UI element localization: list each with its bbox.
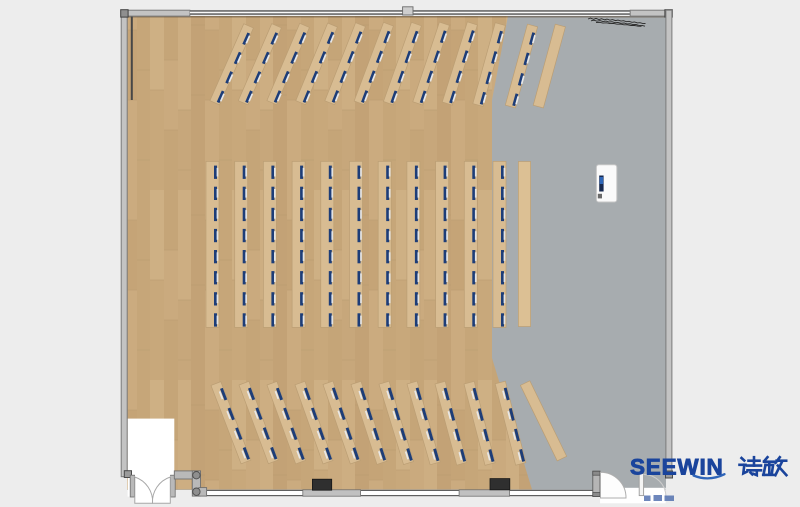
svg-text:SEEWIN: SEEWIN [630, 455, 724, 480]
